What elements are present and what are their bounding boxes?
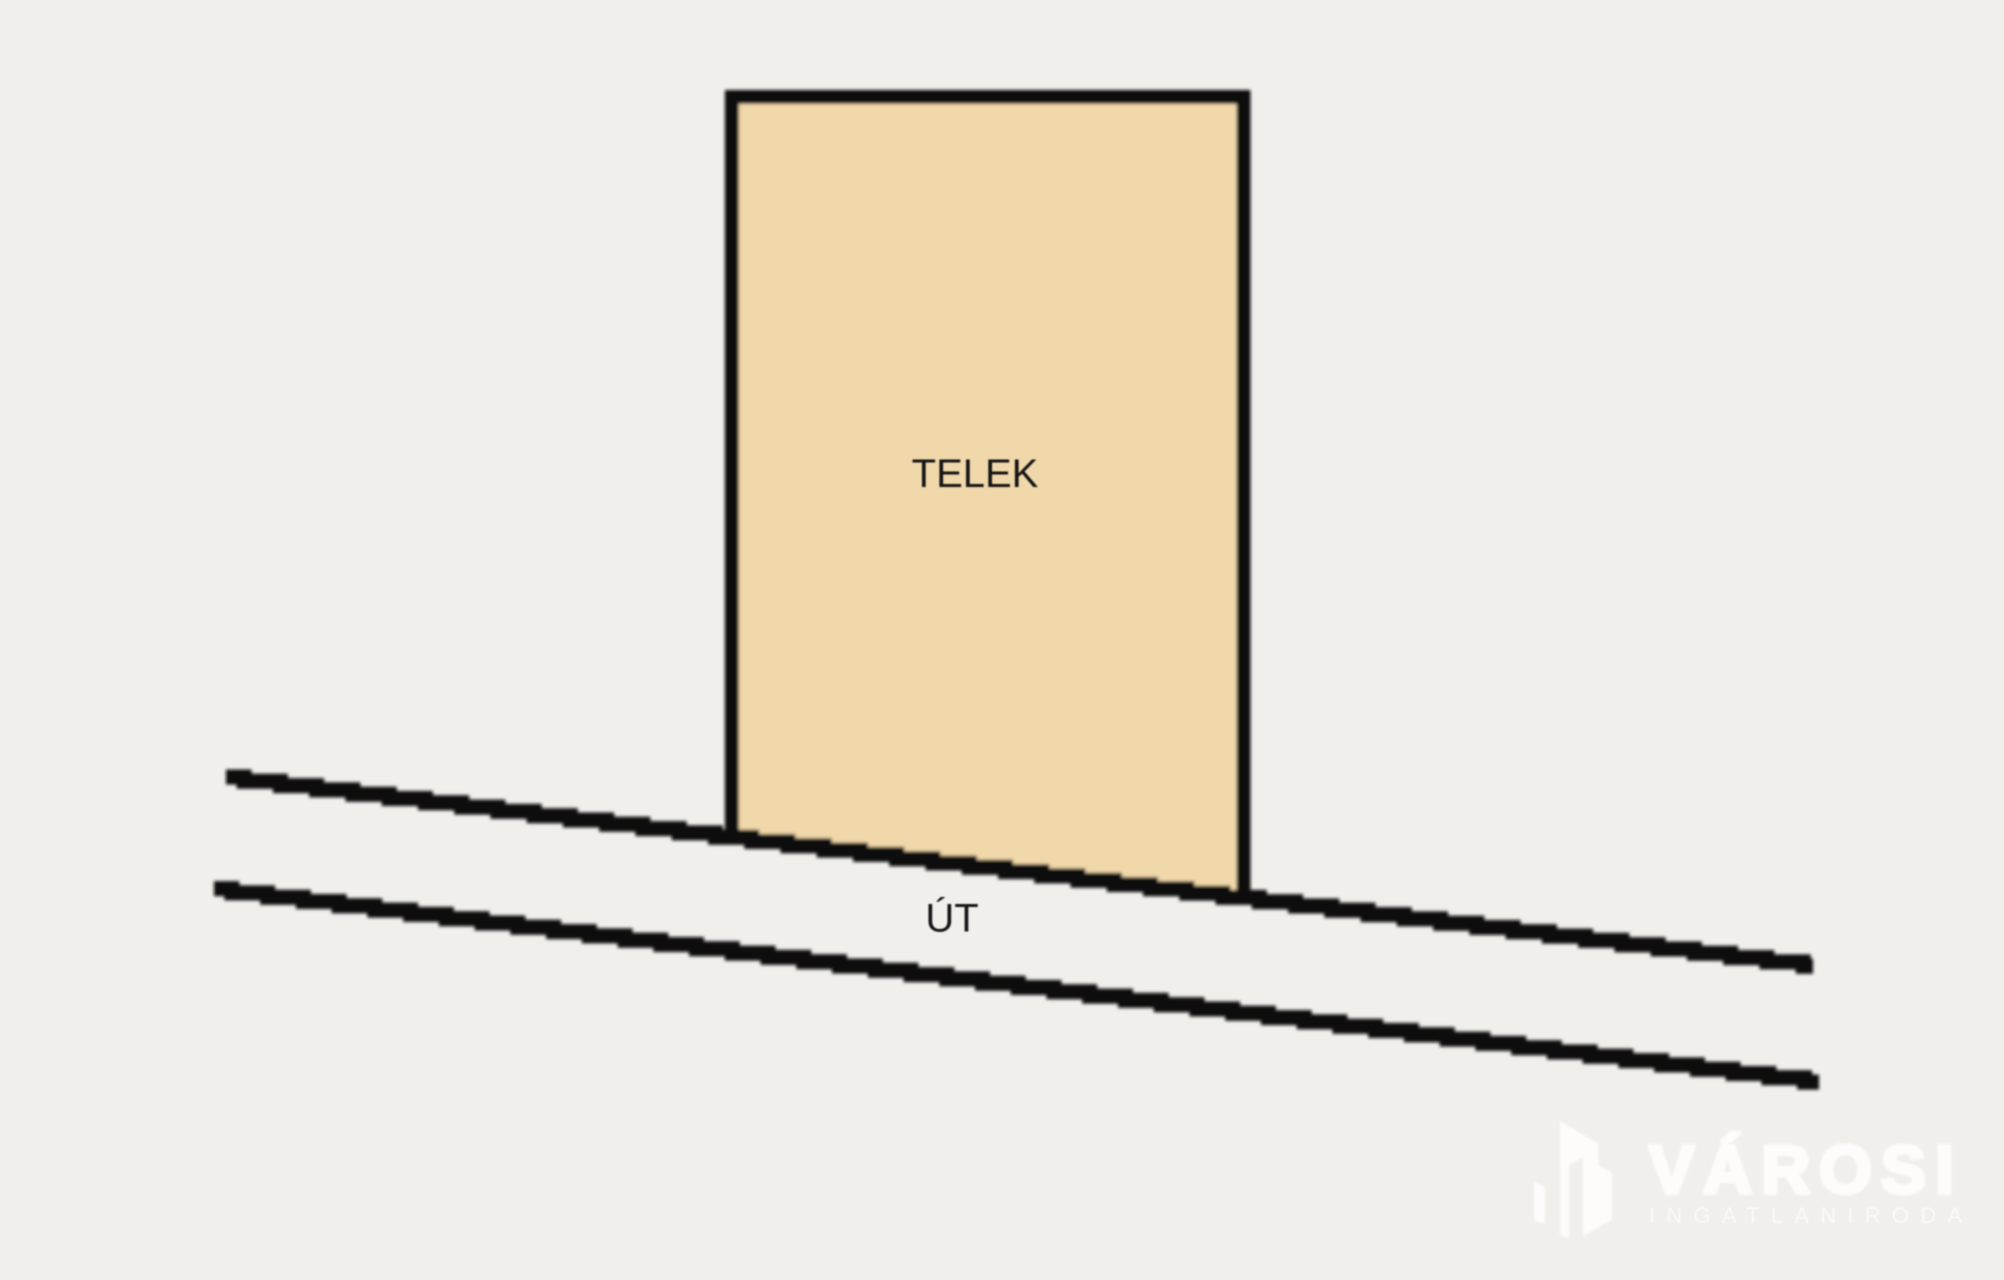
svg-text:INGATLANIRODA: INGATLANIRODA [1649, 1203, 1973, 1228]
svg-text:VÁROSI: VÁROSI [1649, 1132, 1963, 1208]
svg-text:TELEK: TELEK [912, 452, 1039, 496]
svg-text:ÚT: ÚT [925, 896, 978, 941]
